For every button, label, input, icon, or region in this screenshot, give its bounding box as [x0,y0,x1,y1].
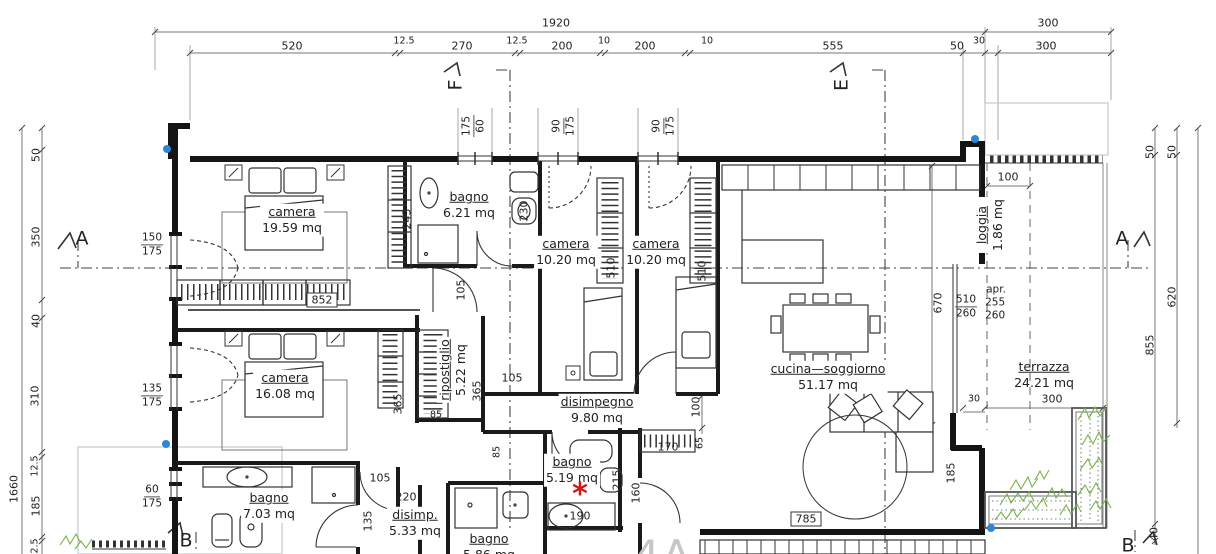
dim-wall-pair: 135175 [141,382,163,409]
dim-wall-pair: 60175 [142,483,162,510]
unit-label: 4A [633,535,692,554]
dim-interior: 510 [697,261,708,282]
dim-interior: 185 [946,463,957,484]
dim-interior-pair: 510260 [955,293,977,320]
dim-top-row: 300 [1036,41,1057,52]
dim-wall-pair: 150175 [141,231,163,258]
dim-interior: 100 [998,172,1019,183]
section-marker-e: E [833,79,852,91]
dim-left: 350 [31,227,42,248]
dim-right: 855 [1145,335,1156,356]
sofa [828,390,933,472]
room-label-camera4: camera16.08 mq [253,370,317,403]
section-marker-b-left: B [179,532,192,551]
room-label-disimp2: disimp.5.33 mq [387,507,443,540]
dim-top-row: 12.5 [506,36,527,46]
section-marker-a-right: A [1116,230,1129,249]
dim-interior: 170 [658,442,679,453]
dim-top-row: 30 [973,36,985,46]
dim-interior: 85 [430,410,442,420]
dim-left-total: 1660 [9,475,20,503]
dim-left: 185 [31,496,42,517]
dim-interior: 220 [396,492,417,503]
note-asterisk: * [572,480,588,510]
dim-left: 50 [31,148,42,162]
dim-window-pair: 90175 [650,116,677,136]
dim-interior: 190 [570,511,591,522]
dim-right: 620 [1167,287,1178,308]
dim-interior: 230 [519,201,530,222]
section-marker-a-left: A [76,230,89,249]
dim-top-row: 200 [552,41,573,52]
planter [985,408,1106,528]
room-label-cucina: cucina—soggiorno51.17 mq [769,361,888,394]
dim-interior: 85 [492,446,502,458]
dim-top-right-total: 300 [1038,18,1059,29]
dim-interior: 365 [393,394,404,415]
dim-top-row: 12.5 [393,36,414,46]
dim-interior: 105 [370,473,391,484]
floor-plan: 1920 300 520 12.5 270 12.5 200 10 200 10… [0,0,1216,554]
dim-window-pair: 90175 [550,116,577,136]
dim-interior: 365 [472,381,483,402]
dim-interior: 65 [695,437,705,449]
room-label-disimpegno: disimpegno9.80 mq [559,394,636,427]
dim-interior: 785 [791,512,822,527]
room-label-terrazza: terrazza24.21 mq [1012,359,1076,392]
dim-top-row: 10 [701,36,713,46]
dim-left: 2.5 [30,538,40,553]
dim-interior: 245 [402,209,413,230]
dim-apr: apr. 255 260 [985,283,1007,322]
room-label-camera3: camera10.20 mq [624,236,688,269]
dim-right: 50 [1145,145,1156,159]
dim-top-row: 200 [635,41,656,52]
dim-interior: 510 [606,258,617,279]
dim-top-row: 50 [950,41,964,52]
dim-interior: 852 [307,293,338,308]
dim-interior: 300 [1042,394,1063,405]
dim-right: 40 [1149,527,1160,541]
kitchen-cabinets [722,165,980,283]
dim-top-row: 520 [282,41,303,52]
dim-interior: 670 [933,293,944,314]
dim-interior: 100 [691,397,702,418]
dim-top-row: 10 [598,36,610,46]
section-marker-f: F [447,80,466,91]
dim-left: 310 [30,386,41,407]
dim-top-row: 555 [823,41,844,52]
dim-top-total: 1920 [542,18,570,29]
dim-interior: 30 [968,394,980,404]
dining-table [771,294,880,363]
bed-single [584,277,716,380]
dim-right: 50 [1167,145,1178,159]
dim-left: 12.5 [30,455,40,476]
dim-interior: 135 [363,511,374,532]
dim-left: 40 [31,314,42,328]
room-label-camera2: camera10.20 mq [534,236,598,269]
room-label-bagno3: bagno7.03 mq [241,490,297,523]
dim-window-pair: 17560 [460,115,487,137]
room-label-loggia: loggia1.86 mq [974,197,1007,253]
dim-top-row: 270 [452,41,473,52]
wardrobe [378,166,716,452]
dim-interior: 105 [502,373,523,384]
section-marker-b-right: B [1121,537,1134,554]
room-label-bagno4: bagno5.86 mq [461,531,517,554]
room-label-camera1: camera19.59 mq [260,204,324,237]
dim-interior: 160 [631,483,642,504]
dim-interior: 215 [612,470,623,491]
dim-interior: 105 [456,280,467,301]
room-label-bagno1: bagno6.21 mq [441,189,497,222]
room-label-ripostiglio: ripostiglio5.22 mq [437,337,470,403]
